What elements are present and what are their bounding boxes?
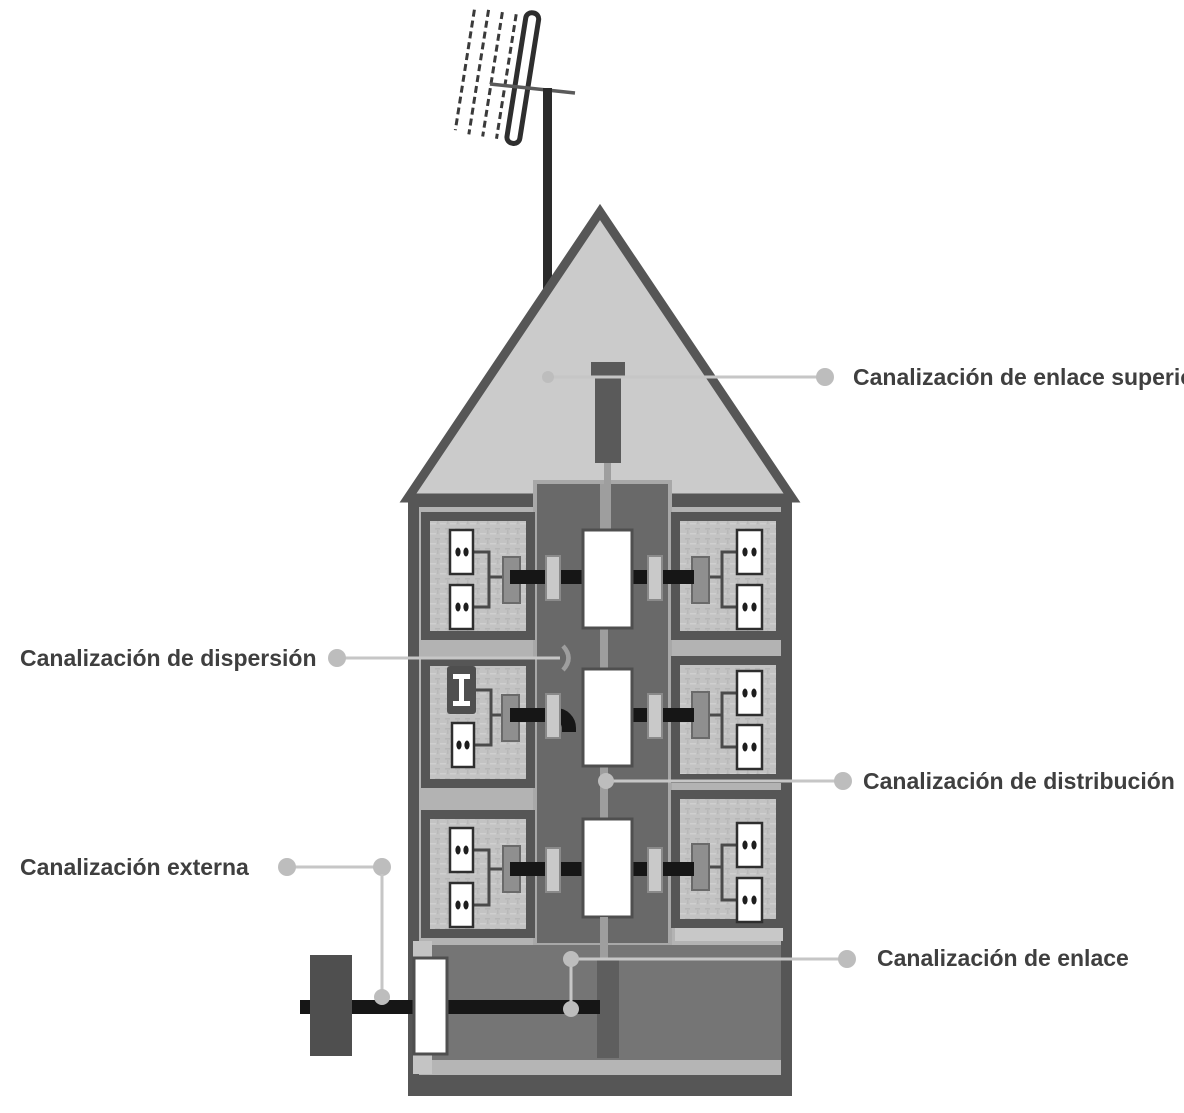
label-enlace: Canalización de enlace (877, 945, 1129, 971)
ict-canalization-diagram: Canalización de enlace superior Canaliza… (0, 0, 1184, 1113)
leader-dot-icon (834, 772, 852, 790)
leader-dot-icon (816, 368, 834, 386)
registry-box-icon (583, 530, 632, 628)
dwelling-left-floor2 (421, 657, 535, 788)
socket-outlet-icon (450, 530, 473, 574)
socket-outlet-icon (452, 723, 474, 767)
antenna-icon (455, 4, 575, 145)
shaft-bottom-register-icon (597, 960, 619, 1058)
label-distribucion: Canalización de distribución (863, 768, 1175, 794)
leader-dot-icon (374, 989, 390, 1005)
socket-outlet-icon (450, 883, 473, 927)
leader-dot-icon (542, 371, 554, 383)
pass-register-icon (546, 694, 560, 738)
socket-outlet-icon (737, 585, 762, 629)
pass-register-icon (648, 556, 662, 600)
shaft-registry-boxes (583, 530, 632, 917)
socket-outlet-icon (737, 878, 762, 922)
pau-register-icon (692, 844, 709, 890)
pass-register-icon (546, 556, 560, 600)
registry-box-icon (583, 819, 632, 917)
socket-outlet-icon (450, 828, 473, 872)
diagram-canvas: Canalización de enlace superior Canaliza… (0, 0, 1184, 1113)
leader-dot-icon (278, 858, 296, 876)
label-externa: Canalización externa (20, 854, 249, 880)
socket-outlet-icon (737, 823, 762, 867)
leader-dot-icon (598, 773, 614, 789)
socket-outlet-icon (737, 671, 762, 715)
socket-outlet-icon (450, 585, 473, 629)
pau-register-icon (692, 692, 709, 738)
dwelling-right-floor3 (671, 790, 785, 928)
socket-outlet-icon (737, 530, 762, 574)
pass-register-icon (546, 848, 560, 892)
pass-register-icon (648, 848, 662, 892)
leader-dot-icon (838, 950, 856, 968)
pau-register-icon (692, 557, 709, 603)
entry-registry-box-icon (414, 958, 447, 1054)
label-enlace-superior: Canalización de enlace superior (853, 364, 1184, 390)
registry-box-icon (583, 669, 632, 766)
leader-dot-icon (373, 858, 391, 876)
pass-register-icon (648, 694, 662, 738)
label-dispersion: Canalización de dispersión (20, 645, 317, 671)
tv-terminal-icon (447, 666, 476, 714)
socket-outlet-icon (737, 725, 762, 769)
leader-dot-icon (563, 951, 579, 967)
leader-dot-icon (328, 649, 346, 667)
external-register-icon (310, 955, 352, 1056)
leader-dot-icon (563, 1001, 579, 1017)
